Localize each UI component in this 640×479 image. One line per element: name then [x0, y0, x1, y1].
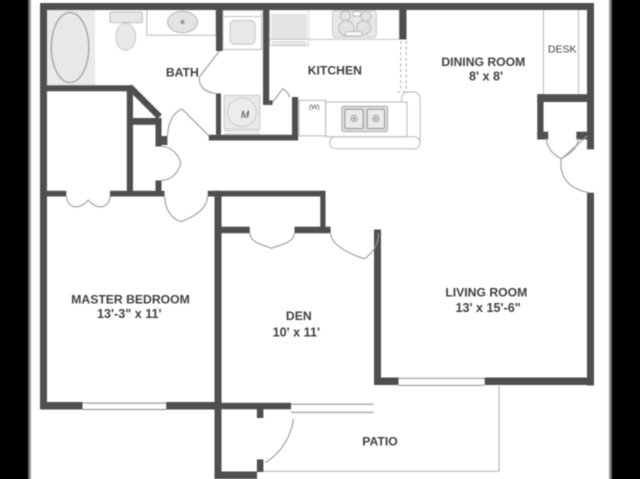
svg-text:DINING ROOM: DINING ROOM: [441, 55, 525, 69]
svg-text:DEN: DEN: [286, 309, 312, 323]
svg-text:8' x 8': 8' x 8': [469, 70, 503, 84]
svg-text:M: M: [241, 110, 250, 121]
svg-text:PATIO: PATIO: [362, 434, 397, 448]
svg-text:LIVING ROOM: LIVING ROOM: [445, 285, 527, 299]
svg-text:KITCHEN: KITCHEN: [308, 63, 362, 77]
svg-text:13'-3" x 11': 13'-3" x 11': [97, 307, 161, 321]
svg-text:MASTER BEDROOM: MASTER BEDROOM: [71, 292, 190, 306]
svg-text:13' x 15'-6": 13' x 15'-6": [456, 301, 521, 315]
svg-text:10' x 11': 10' x 11': [273, 326, 320, 340]
svg-text:DESK: DESK: [548, 44, 577, 56]
svg-text:BATH: BATH: [166, 66, 199, 80]
svg-text:(W): (W): [309, 104, 320, 111]
